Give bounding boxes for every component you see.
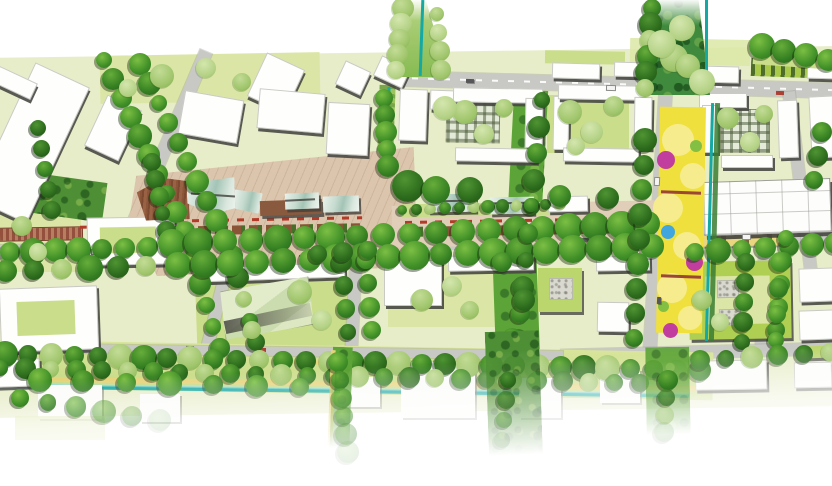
building <box>798 267 832 302</box>
tree <box>205 318 221 334</box>
tree <box>387 61 404 78</box>
tree <box>527 143 547 163</box>
tree <box>52 259 72 279</box>
tree <box>360 297 380 317</box>
tree <box>33 140 50 157</box>
tree <box>808 146 828 166</box>
tree <box>29 243 47 261</box>
tree <box>581 121 603 143</box>
tree <box>411 204 422 215</box>
building <box>798 309 832 340</box>
play-circle <box>663 323 678 338</box>
tree <box>11 389 28 406</box>
tree <box>442 276 462 296</box>
tree <box>528 116 550 138</box>
car <box>657 296 661 303</box>
tree <box>119 79 137 97</box>
tree <box>337 441 358 462</box>
tree <box>122 406 142 426</box>
tree <box>169 133 188 152</box>
courtyard <box>16 300 75 336</box>
tree <box>312 310 332 330</box>
tree <box>288 280 312 304</box>
tree <box>495 99 513 117</box>
tree <box>333 242 353 262</box>
tree <box>468 201 480 213</box>
tree <box>457 177 483 203</box>
tree <box>77 255 102 280</box>
tree <box>411 289 433 311</box>
tree <box>636 79 654 97</box>
tree <box>422 176 450 204</box>
tree <box>138 237 157 256</box>
tree <box>331 371 348 388</box>
tree <box>245 250 270 275</box>
tree <box>740 132 760 152</box>
tree <box>309 245 327 263</box>
tree <box>717 107 739 129</box>
tree <box>558 100 582 124</box>
tree <box>604 96 624 116</box>
tree <box>143 153 161 171</box>
tree <box>549 185 571 207</box>
tree <box>150 64 174 88</box>
tree <box>337 299 356 318</box>
tree <box>431 60 450 79</box>
tree <box>769 278 789 298</box>
tree <box>335 276 354 295</box>
building <box>455 147 537 162</box>
tree <box>648 30 676 58</box>
building <box>558 84 644 100</box>
tree <box>533 237 560 264</box>
tree <box>755 105 773 123</box>
tree <box>271 248 296 273</box>
tree <box>191 250 218 277</box>
tree <box>812 122 832 142</box>
tree <box>656 406 674 424</box>
tree <box>586 235 612 261</box>
car <box>466 79 474 83</box>
tree <box>689 69 715 95</box>
tree <box>92 400 115 423</box>
tree <box>567 137 585 155</box>
building <box>552 62 600 79</box>
tree <box>524 198 538 212</box>
tree <box>658 389 675 406</box>
tree <box>735 293 752 310</box>
tree <box>430 24 447 41</box>
tree <box>37 161 52 176</box>
tree <box>626 303 646 323</box>
tree <box>692 290 712 310</box>
tree <box>107 256 129 278</box>
bottom-white <box>0 456 832 486</box>
tree <box>340 324 355 339</box>
play-circle <box>661 225 675 239</box>
tree <box>559 235 587 263</box>
tree <box>197 191 216 210</box>
tree <box>805 171 823 189</box>
tree <box>150 187 169 206</box>
tree <box>455 240 481 266</box>
tree <box>136 256 156 276</box>
tree <box>711 313 729 331</box>
tree <box>0 242 20 262</box>
building <box>256 88 325 134</box>
tree <box>632 179 652 199</box>
tree <box>474 124 494 144</box>
tree <box>392 170 424 202</box>
tree <box>159 113 177 131</box>
glass-pavilion <box>323 195 360 212</box>
tree <box>654 422 674 442</box>
building <box>721 155 773 168</box>
tree <box>433 96 457 120</box>
tree <box>240 228 263 251</box>
tree <box>627 253 649 275</box>
tree <box>400 241 429 270</box>
tree <box>494 432 509 447</box>
tree <box>186 170 209 193</box>
car <box>654 176 660 185</box>
play-circle <box>657 151 675 169</box>
building <box>777 100 799 159</box>
tree <box>233 73 251 91</box>
tree <box>40 394 57 411</box>
tree <box>115 238 135 258</box>
building <box>597 302 630 333</box>
tree <box>597 187 619 209</box>
tree <box>772 39 796 63</box>
tree <box>629 229 649 249</box>
tree <box>492 252 512 272</box>
tree <box>243 321 261 339</box>
tree <box>430 41 450 61</box>
tree <box>12 216 32 236</box>
tree <box>817 49 832 71</box>
tree <box>359 241 376 258</box>
tree <box>513 289 535 311</box>
building <box>398 89 428 142</box>
building <box>326 102 371 156</box>
tree <box>496 412 511 427</box>
tree <box>146 170 165 189</box>
play-circle <box>690 140 702 152</box>
tree <box>363 321 381 339</box>
tree <box>496 199 509 212</box>
tree <box>165 252 191 278</box>
tree <box>634 155 654 175</box>
tree <box>217 250 243 276</box>
car <box>606 85 616 91</box>
tree <box>198 297 215 314</box>
tree <box>461 301 479 319</box>
car <box>776 91 784 95</box>
play-circle <box>680 163 706 189</box>
tree <box>430 7 445 22</box>
tree <box>736 273 753 290</box>
tree <box>749 33 775 59</box>
tree <box>196 58 216 78</box>
tree <box>453 100 477 124</box>
gravel-court <box>549 278 573 300</box>
tree <box>629 203 652 226</box>
tree <box>658 370 678 390</box>
masterplan-canvas <box>0 0 832 486</box>
tree <box>500 372 515 387</box>
